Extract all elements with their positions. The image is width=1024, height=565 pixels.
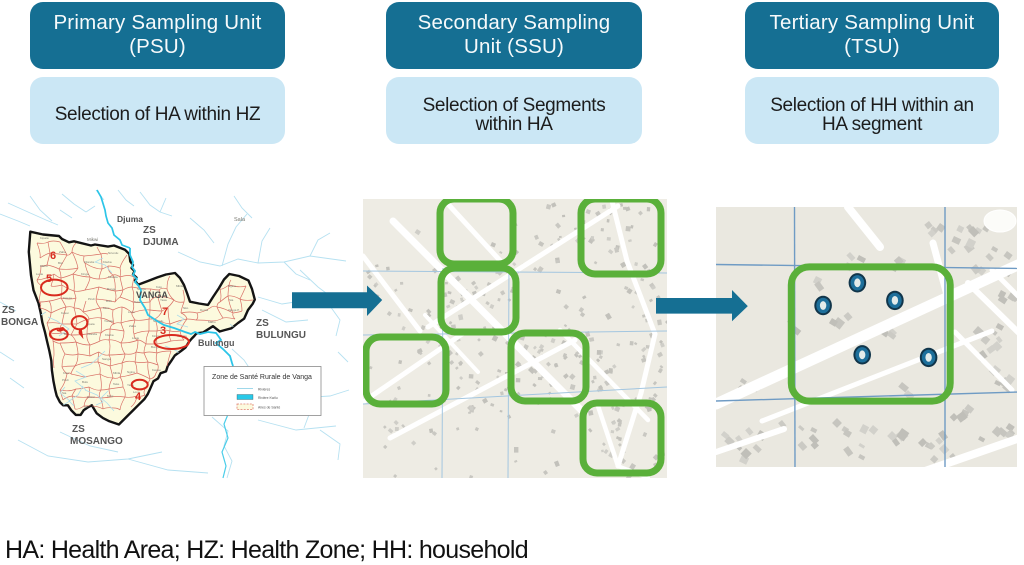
svg-text:Sia: Sia xyxy=(229,298,234,302)
svg-text:Duma: Duma xyxy=(200,308,208,312)
svg-text:ZS: ZS xyxy=(256,318,269,329)
svg-text:Sia: Sia xyxy=(62,391,67,395)
svg-text:Bulu: Bulu xyxy=(106,299,112,303)
svg-text:Mosi: Mosi xyxy=(103,306,110,310)
svg-text:Bulungu: Bulungu xyxy=(198,338,235,348)
svg-text:Kinga: Kinga xyxy=(81,272,89,276)
svg-text:Kiteba: Kiteba xyxy=(105,333,114,337)
svg-text:Mabu: Mabu xyxy=(40,264,48,268)
svg-text:Zaba: Zaba xyxy=(129,324,136,328)
svg-text:Sala: Sala xyxy=(234,217,246,223)
svg-text:Aires de Santé: Aires de Santé xyxy=(258,406,280,410)
svg-text:Nko: Nko xyxy=(183,306,189,310)
svg-text:ZS: ZS xyxy=(143,225,156,236)
svg-text:DJUMA: DJUMA xyxy=(143,237,179,248)
svg-text:Kipata: Kipata xyxy=(40,236,49,240)
svg-text:Bulu: Bulu xyxy=(82,380,88,384)
svg-text:Mosi: Mosi xyxy=(107,394,114,398)
svg-text:Mbila: Mbila xyxy=(113,371,121,375)
svg-text:Mbila: Mbila xyxy=(176,284,184,288)
svg-text:Djuma: Djuma xyxy=(117,214,143,224)
svg-text:7: 7 xyxy=(162,306,168,318)
svg-text:Bonga: Bonga xyxy=(107,287,116,291)
svg-text:MOSANGO: MOSANGO xyxy=(70,436,123,447)
svg-text:Mokala: Mokala xyxy=(108,275,118,279)
svg-text:Lusie: Lusie xyxy=(36,272,44,276)
svg-text:ZS: ZS xyxy=(72,424,85,435)
svg-text:Lusie: Lusie xyxy=(132,336,140,340)
svg-text:Vanga P.: Vanga P. xyxy=(228,308,240,312)
svg-text:Kwese: Kwese xyxy=(152,368,161,372)
svg-text:Mabu: Mabu xyxy=(208,320,216,324)
svg-text:Kiteba: Kiteba xyxy=(103,260,112,264)
svg-text:ZS: ZS xyxy=(2,305,15,316)
svg-text:Lovo: Lovo xyxy=(128,310,135,314)
svg-text:Kilanda: Kilanda xyxy=(87,332,97,336)
svg-text:Zaba: Zaba xyxy=(59,250,66,254)
svg-text:Mikwi: Mikwi xyxy=(87,237,98,242)
svg-text:4: 4 xyxy=(135,391,142,403)
svg-text:Pindi: Pindi xyxy=(88,297,95,301)
svg-text:Zone de Santé Rurale de Vanga: Zone de Santé Rurale de Vanga xyxy=(212,374,312,381)
svg-text:VANGA: VANGA xyxy=(136,290,168,300)
svg-text:Rivière Kwilu: Rivière Kwilu xyxy=(258,396,278,400)
svg-text:3: 3 xyxy=(160,325,166,337)
svg-text:Ngina: Ngina xyxy=(127,370,135,374)
svg-text:BULUNGU: BULUNGU xyxy=(256,330,306,341)
svg-text:Rivières: Rivières xyxy=(258,388,271,392)
svg-text:Kolo: Kolo xyxy=(63,371,69,375)
svg-text:Yosala: Yosala xyxy=(104,319,113,323)
svg-text:Pindi: Pindi xyxy=(62,378,69,382)
svg-text:Kasai: Kasai xyxy=(61,311,69,315)
svg-text:6: 6 xyxy=(50,250,56,262)
svg-text:Teke: Teke xyxy=(113,382,120,386)
svg-text:Kolo: Kolo xyxy=(156,285,162,289)
svg-text:Bisi: Bisi xyxy=(58,261,63,265)
svg-text:Kwese: Kwese xyxy=(63,296,72,300)
svg-text:Sanga: Sanga xyxy=(102,357,111,361)
svg-text:Kilanda: Kilanda xyxy=(84,260,94,264)
svg-text:Kasai: Kasai xyxy=(87,395,95,399)
svg-text:BONGA: BONGA xyxy=(1,317,38,328)
svg-text:Ngina: Ngina xyxy=(228,284,236,288)
svg-text:5: 5 xyxy=(46,273,52,285)
svg-text:Nzundu: Nzundu xyxy=(108,251,119,255)
